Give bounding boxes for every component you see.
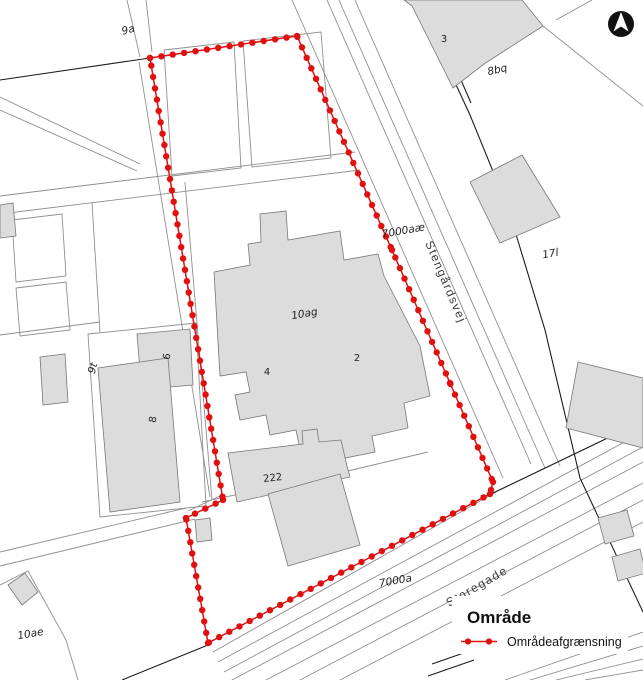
building-left-mid (40, 354, 68, 405)
north-arrow-icon (608, 11, 634, 37)
building-small-inside (195, 518, 212, 542)
building-bottom-right-1 (598, 510, 634, 544)
parcel-label-8bq: 8bq (486, 62, 508, 78)
legend-title: Område (467, 608, 531, 627)
parcel-label-7000aae: 7000aæ (381, 221, 426, 240)
map-page: 9a 3 8bq 7000aæ Stengårdsvej 17l 10ag 2 … (0, 0, 643, 680)
building-17l-parcel (470, 155, 560, 243)
building-label-2: 2 (354, 353, 360, 364)
building-bottom-right-2 (612, 549, 643, 581)
building-school-main (214, 211, 430, 459)
map-canvas: 9a 3 8bq 7000aæ Stengårdsvej 17l 10ag 2 … (0, 0, 643, 680)
legend-item-label: Områdeafgrænsning (507, 635, 622, 649)
building-left-edge-1 (0, 203, 16, 238)
building-10ae (8, 573, 38, 605)
building-label-3: 3 (441, 34, 447, 45)
parcel-label-9a: 9a (120, 23, 136, 38)
road-label-stengaardsvej: Stengårdsvej (422, 239, 469, 326)
parcel-label-17l: 17l (541, 247, 559, 262)
building-3 (404, 0, 543, 88)
building-label-4: 4 (264, 367, 270, 378)
building-8 (98, 358, 180, 512)
legend: Område Områdeafgrænsning (452, 596, 628, 654)
building-right-edge (566, 362, 643, 448)
building-label-222: 222 (263, 472, 283, 485)
parcel-label-10ae: 10ae (17, 626, 45, 642)
